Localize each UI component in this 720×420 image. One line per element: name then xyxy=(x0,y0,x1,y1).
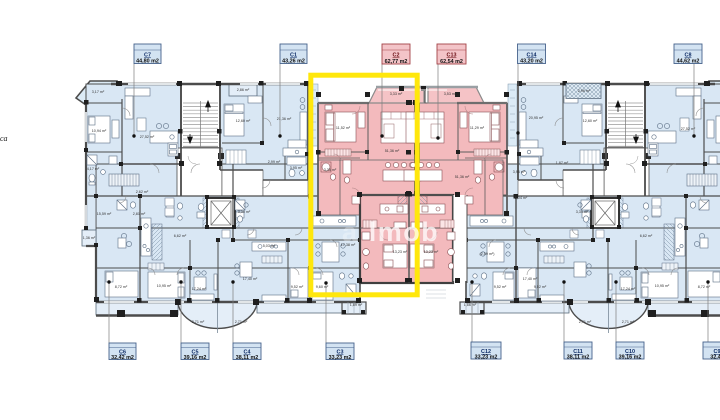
svg-text:2,71 m²: 2,71 m² xyxy=(622,320,635,324)
svg-text:17,40 m²: 17,40 m² xyxy=(243,277,258,281)
svg-text:1,36 m²: 1,36 m² xyxy=(83,236,96,240)
svg-text:33,23 m2: 33,23 m2 xyxy=(475,355,498,361)
svg-text:20,95 m²: 20,95 m² xyxy=(529,116,544,120)
svg-text:21,36 m²: 21,36 m² xyxy=(277,117,292,121)
svg-text:10,95 m²: 10,95 m² xyxy=(655,284,670,288)
svg-text:ca: ca xyxy=(0,134,8,143)
svg-text:10,94 m²: 10,94 m² xyxy=(92,129,107,133)
svg-text:39,16 m2: 39,16 m2 xyxy=(184,355,207,361)
svg-text:6,62 m²: 6,62 m² xyxy=(640,234,653,238)
svg-text:1,66 m²: 1,66 m² xyxy=(464,303,477,307)
svg-text:15,59 m²: 15,59 m² xyxy=(97,212,112,216)
svg-text:13,23 m²: 13,23 m² xyxy=(424,250,439,254)
svg-text:32,42 m2: 32,42 m2 xyxy=(111,355,134,361)
svg-text:3,53 m²: 3,53 m² xyxy=(444,92,457,96)
svg-text:38,11 m2: 38,11 m2 xyxy=(236,355,258,361)
svg-text:44,80 m2: 44,80 m2 xyxy=(136,59,159,65)
svg-text:1,87 m²: 1,87 m² xyxy=(556,161,569,165)
svg-text:3,96 m²: 3,96 m² xyxy=(513,170,526,174)
svg-text:51,36 m²: 51,36 m² xyxy=(455,175,470,179)
svg-text:5,03 m²: 5,03 m² xyxy=(263,244,276,248)
svg-text:C2: C2 xyxy=(393,53,400,59)
svg-text:3,95 m²: 3,95 m² xyxy=(290,166,303,170)
svg-text:43,26 m2: 43,26 m2 xyxy=(282,59,305,65)
svg-text:9,52 m²: 9,52 m² xyxy=(494,285,507,289)
svg-text:43,20 m2: 43,20 m2 xyxy=(520,59,543,65)
svg-text:a: a xyxy=(342,217,358,247)
svg-text:1,89 m²: 1,89 m² xyxy=(350,303,363,307)
svg-text:38,11 m2: 38,11 m2 xyxy=(567,355,589,361)
svg-text:17,24 m²: 17,24 m² xyxy=(621,287,636,291)
svg-text:8,72 m²: 8,72 m² xyxy=(698,285,711,289)
svg-text:2,71 m²: 2,71 m² xyxy=(235,320,248,324)
svg-text:39,16 m2: 39,16 m2 xyxy=(619,355,642,361)
svg-text:9,52 m²: 9,52 m² xyxy=(534,285,547,289)
svg-text:62,54 m2: 62,54 m2 xyxy=(440,59,463,65)
svg-text:27,52 m²: 27,52 m² xyxy=(140,135,155,139)
svg-text:2,96 m²: 2,96 m² xyxy=(578,89,591,93)
svg-text:3,33 m²: 3,33 m² xyxy=(390,92,403,96)
svg-text:62,77 m2: 62,77 m2 xyxy=(385,59,408,65)
svg-text:2,71 m²: 2,71 m² xyxy=(192,320,205,324)
svg-text:17,40 m²: 17,40 m² xyxy=(523,277,538,281)
svg-text:8,72 m²: 8,72 m² xyxy=(115,285,128,289)
svg-text:12,60 m²: 12,60 m² xyxy=(236,119,251,123)
svg-text:5,04 m²: 5,04 m² xyxy=(515,196,528,200)
svg-text:11,29 m²: 11,29 m² xyxy=(470,126,485,130)
svg-text:4,17 m²: 4,17 m² xyxy=(87,167,100,171)
svg-text:3,35 m²: 3,35 m² xyxy=(324,168,337,172)
svg-text:9,52 m²: 9,52 m² xyxy=(291,285,304,289)
svg-text:2,62 m²: 2,62 m² xyxy=(136,190,149,194)
svg-text:33,23 m2: 33,23 m2 xyxy=(329,355,352,361)
svg-text:13,23 m²: 13,23 m² xyxy=(393,250,408,254)
svg-text:6,62 m²: 6,62 m² xyxy=(174,234,187,238)
svg-text:2,81 m²: 2,81 m² xyxy=(133,212,146,216)
svg-text:C13: C13 xyxy=(447,53,457,59)
svg-text:lmob: lmob xyxy=(369,217,440,247)
svg-text:(2,59 m²): (2,59 m²) xyxy=(480,252,495,256)
svg-text:44,62 m2: 44,62 m2 xyxy=(677,59,700,65)
svg-text:11,52 m²: 11,52 m² xyxy=(336,126,351,130)
svg-text:3,17 m²: 3,17 m² xyxy=(92,90,105,94)
svg-text:17,24 m²: 17,24 m² xyxy=(192,287,207,291)
svg-text:2,71 m²: 2,71 m² xyxy=(579,320,592,324)
svg-text:12,60 m²: 12,60 m² xyxy=(583,119,598,123)
svg-text:2,99 m²: 2,99 m² xyxy=(268,160,281,164)
svg-text:9,60 m²: 9,60 m² xyxy=(316,285,329,289)
svg-text:32,42: 32,42 xyxy=(710,355,720,361)
svg-text:3,39 m²: 3,39 m² xyxy=(576,210,589,214)
svg-text:3,39 m²: 3,39 m² xyxy=(238,210,251,214)
svg-text:2,86 m²: 2,86 m² xyxy=(237,88,250,92)
svg-text:10,95 m²: 10,95 m² xyxy=(157,284,172,288)
svg-text:51,36 m²: 51,36 m² xyxy=(385,149,400,153)
